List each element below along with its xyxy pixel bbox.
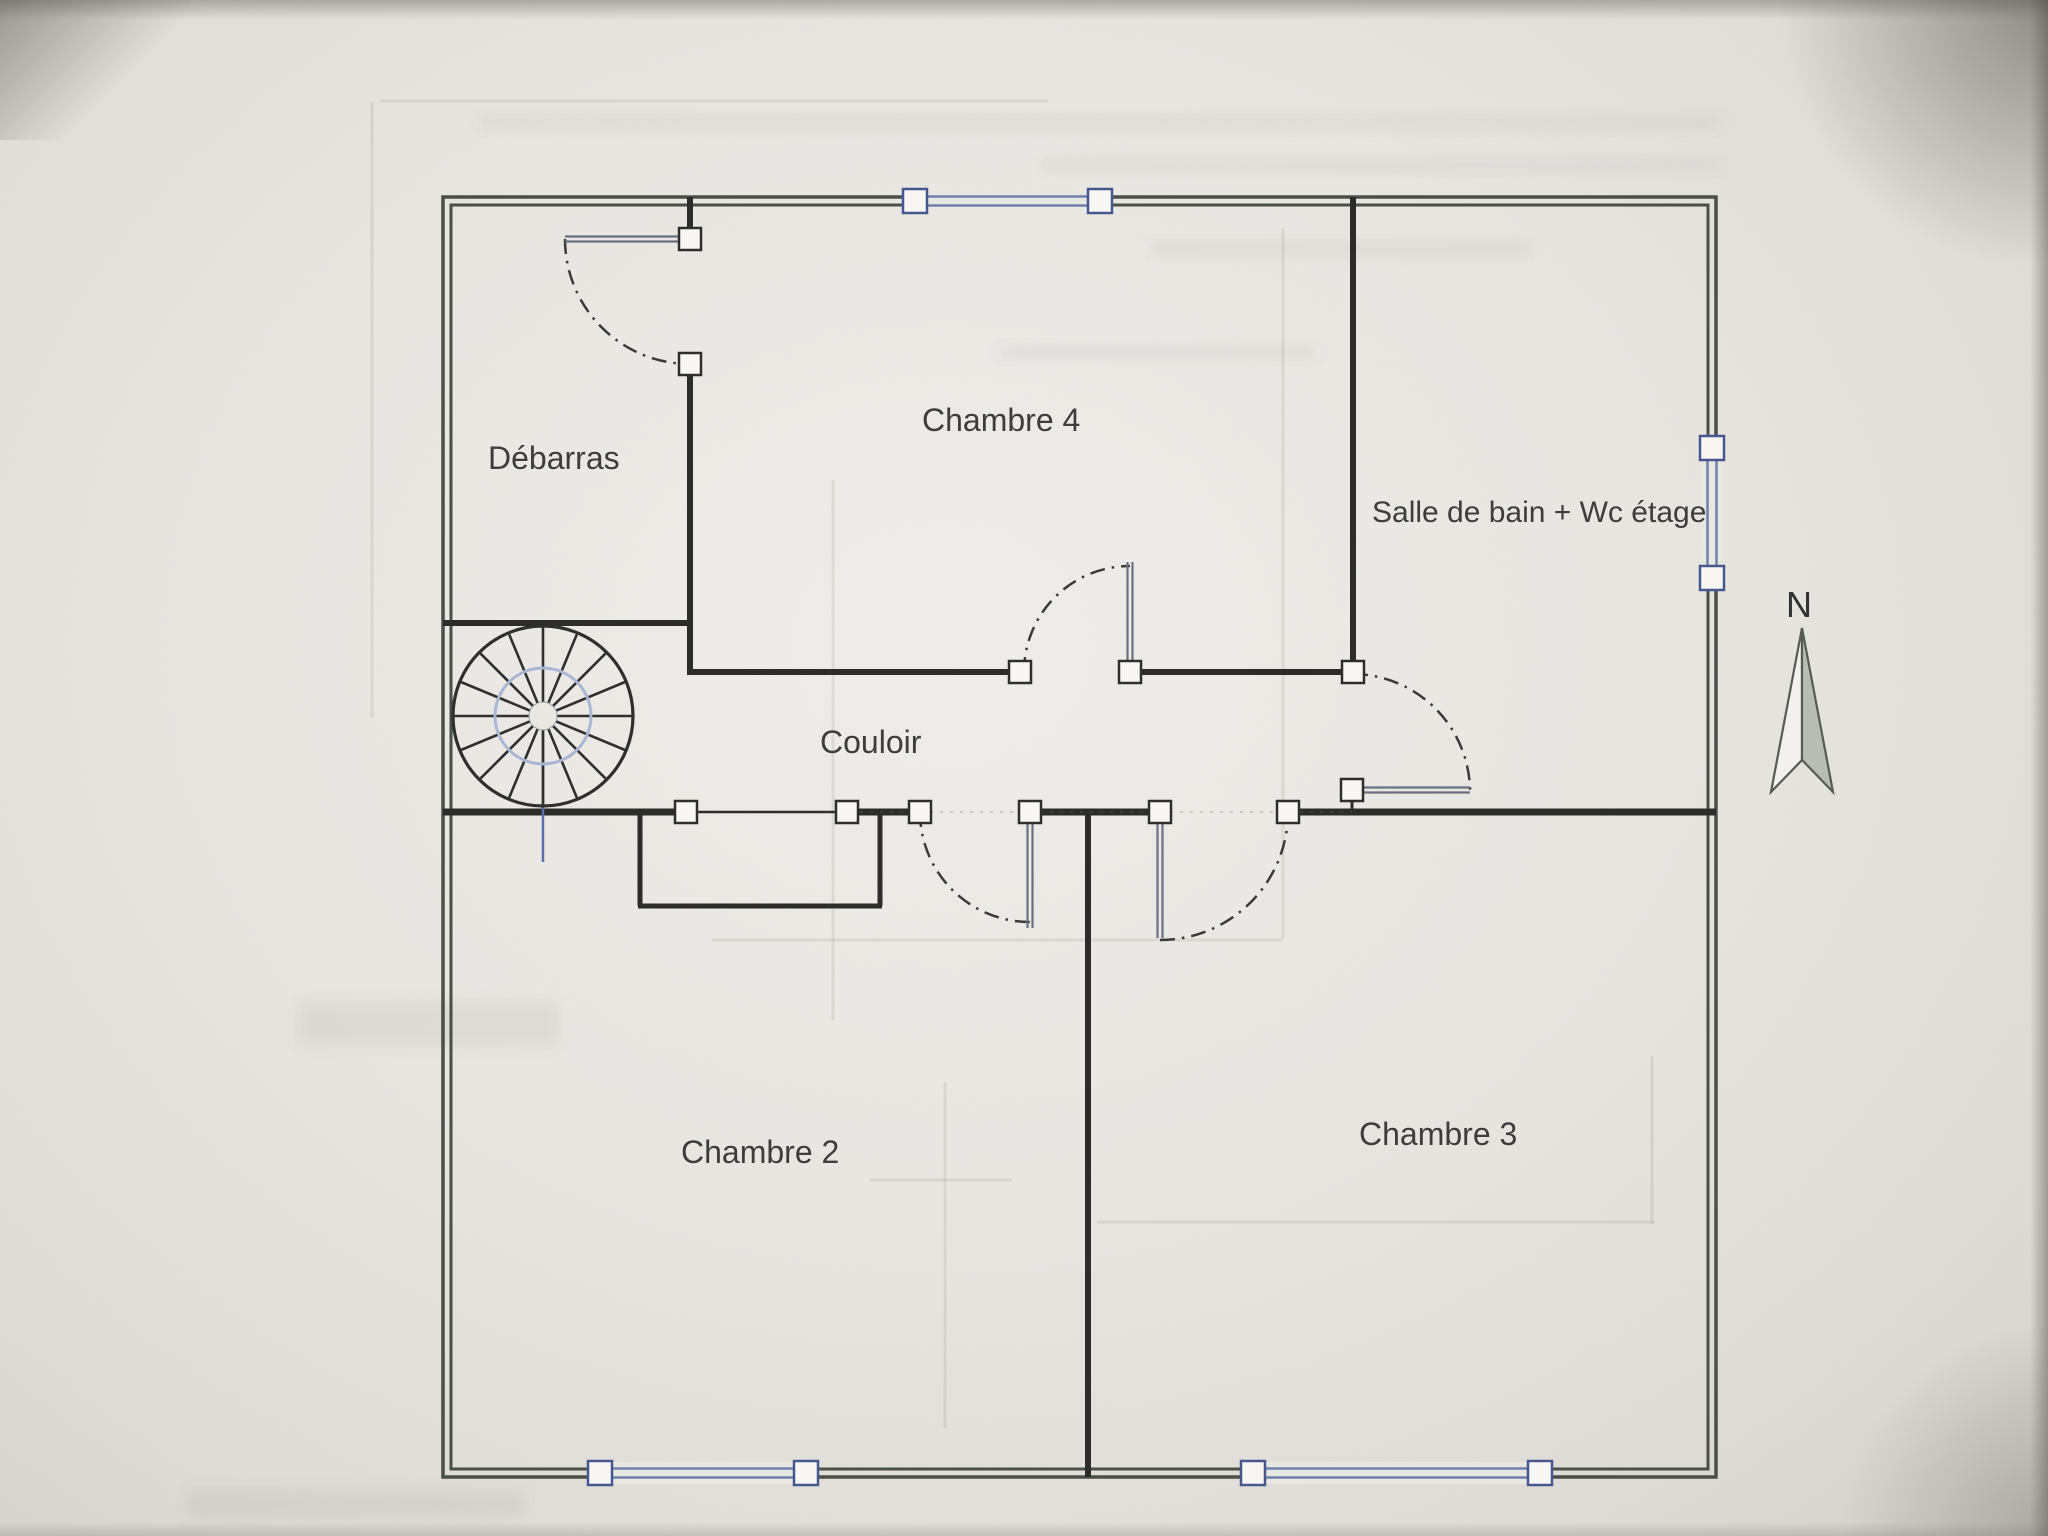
door-jamb-square [1149,801,1171,823]
scanned-floor-plan-photo: Débarras Chambre 4 Salle de bain + Wc ét… [0,0,2048,1536]
door-jamb-square [679,228,701,250]
compass-north-label: N [1786,584,1812,625]
window-jamb-square [1088,189,1112,213]
window-south-left [588,1461,818,1485]
ghost-bleed-mark [1040,159,1720,171]
floorplan-svg: Débarras Chambre 4 Salle de bain + Wc ét… [0,0,2048,1536]
door-jamb-square [675,801,697,823]
room-label-couloir: Couloir [820,724,922,760]
door-jamb-square [1119,661,1141,683]
window-wall-gap [1253,1462,1540,1484]
ghost-bleed-mark [1000,346,1315,359]
room-label-chambre-4: Chambre 4 [922,402,1080,438]
room-label-debarras: Débarras [488,440,620,476]
door-jamb-square [909,801,931,823]
window-jamb-square [794,1461,818,1485]
stair-hub [529,702,557,730]
room-label-chambre-3: Chambre 3 [1359,1116,1517,1152]
ghost-bleed-mark [1150,242,1530,256]
room-label-salle-de-bain: Salle de bain + Wc étage [1372,496,1706,529]
door-jamb-square [679,353,701,375]
window-jamb-square [1700,436,1724,460]
paper-texture [0,0,2048,1536]
door-jamb-square [1009,661,1031,683]
door-jamb-square [1019,801,1041,823]
door-jamb-square [836,801,858,823]
window-jamb-square [1700,566,1724,590]
door-jamb-square [1341,779,1363,801]
window-jamb-square [1241,1461,1265,1485]
window-wall-gap [600,1462,806,1484]
ghost-bleed-mark [480,116,1720,129]
window-jamb-square [903,189,927,213]
door-jamb-square [1342,661,1364,683]
window-jamb-square [588,1461,612,1485]
window-north [903,189,1112,213]
ghost-bleed-mark [186,1490,524,1518]
window-wall-gap [915,190,1100,212]
door-jamb-square [1277,801,1299,823]
window-jamb-square [1528,1461,1552,1485]
ghost-bleed-mark [298,1002,560,1046]
room-label-chambre-2: Chambre 2 [681,1134,839,1170]
window-south-right [1241,1461,1552,1485]
